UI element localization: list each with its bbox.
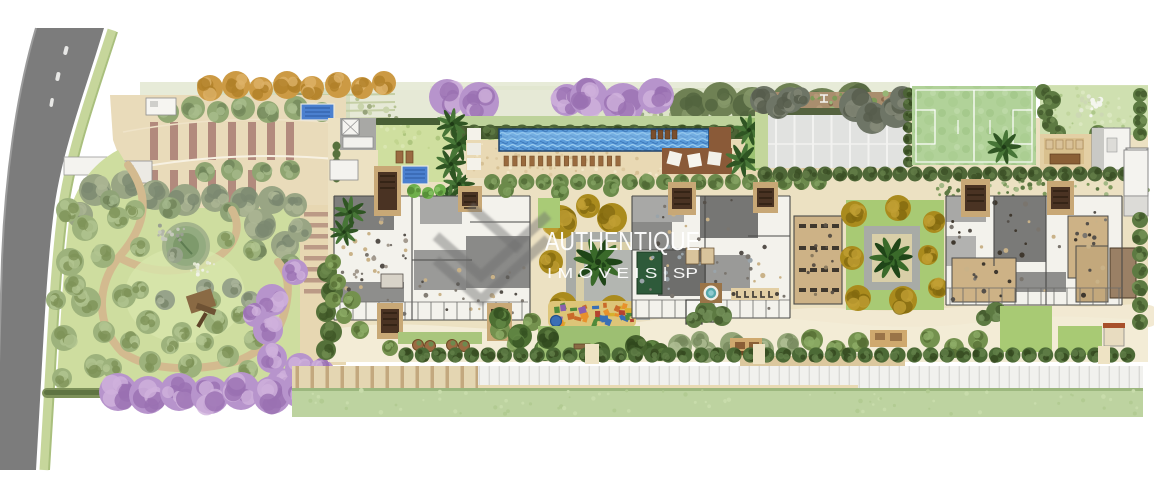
svg-text:I M Ó V E I S | SP: I M Ó V E I S | SP <box>547 265 698 282</box>
svg-text:AUTHENTIQUE: AUTHENTIQUE <box>545 226 700 256</box>
